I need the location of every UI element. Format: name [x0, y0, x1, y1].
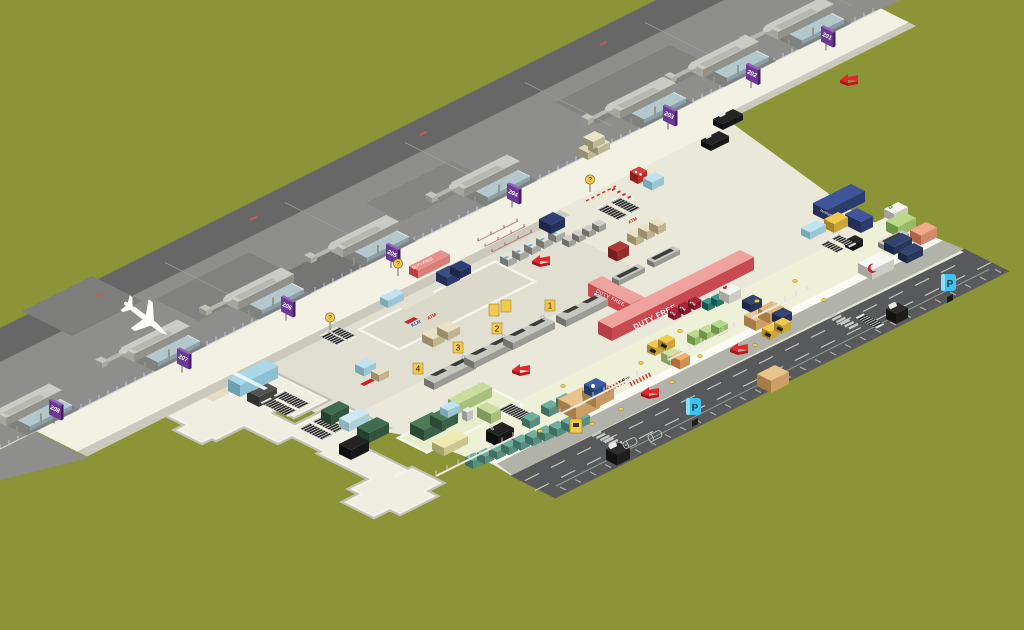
- svg-text:?: ?: [396, 261, 400, 268]
- svg-text:4: 4: [416, 365, 421, 374]
- svg-text:1: 1: [548, 302, 553, 311]
- svg-text:P: P: [947, 279, 954, 290]
- svg-text:?: ?: [328, 315, 332, 322]
- svg-text:2: 2: [495, 325, 500, 334]
- svg-text:3: 3: [456, 344, 461, 353]
- svg-text:?: ?: [588, 177, 592, 184]
- svg-text:P: P: [692, 403, 699, 414]
